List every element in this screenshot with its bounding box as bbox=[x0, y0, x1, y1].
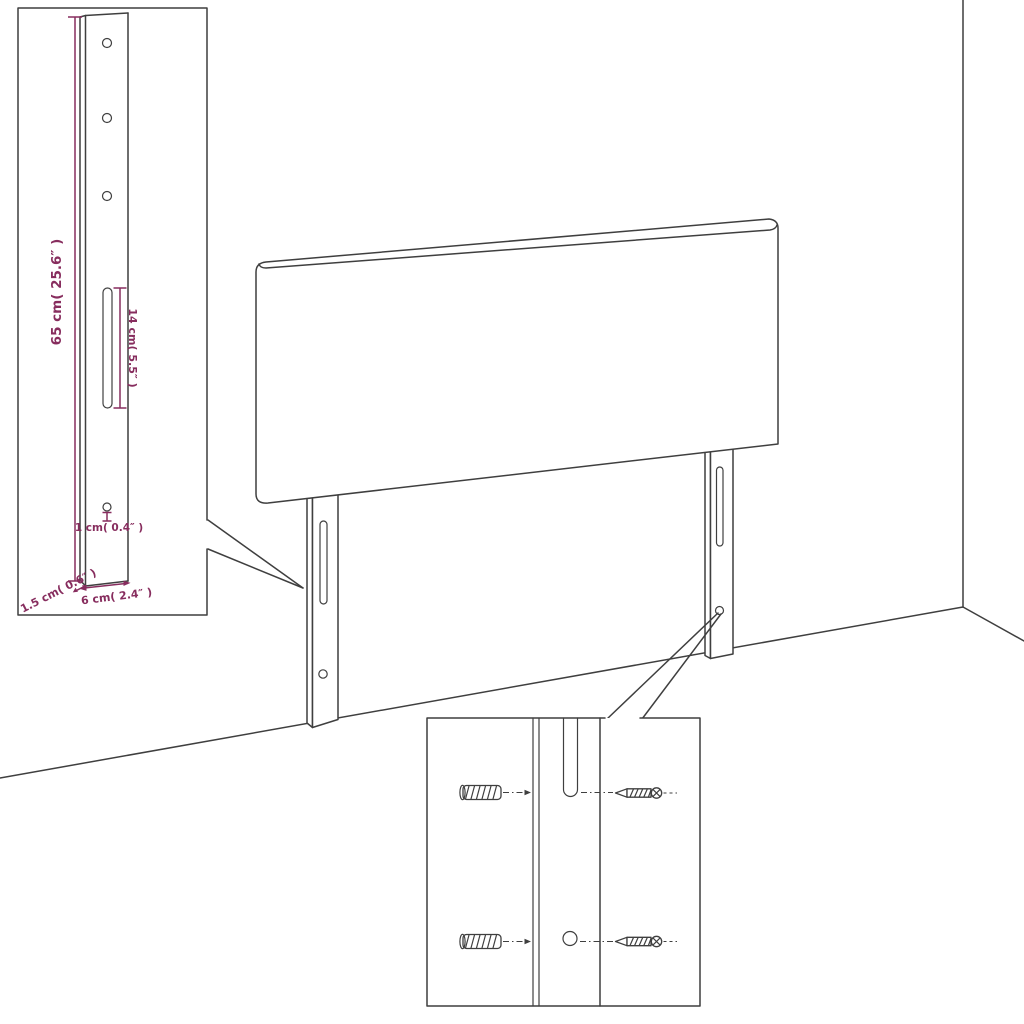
callout-wedge-left bbox=[208, 520, 303, 588]
mounting-detail-inset bbox=[427, 718, 700, 1006]
leg-detail-inset: 65 cm( 25.6″ ) 14 cm( 5.5″ ) 1 cm( 0.4″ … bbox=[18, 8, 207, 616]
right-leg-front-face bbox=[711, 440, 734, 659]
diagram-canvas: 65 cm( 25.6″ ) 14 cm( 5.5″ ) 1 cm( 0.4″ … bbox=[0, 0, 1024, 1024]
callout-line bbox=[208, 520, 303, 588]
callout-line bbox=[607, 613, 718, 719]
headboard-panel bbox=[256, 219, 778, 503]
callout-line bbox=[642, 614, 721, 719]
callout-wedge-bottom bbox=[607, 613, 721, 719]
left-leg bbox=[307, 489, 338, 728]
floor-wall-line-right bbox=[963, 607, 1024, 641]
headboard-outline bbox=[256, 219, 778, 503]
dim-label-hole-size: 1 cm( 0.4″ ) bbox=[75, 522, 143, 534]
right-leg-side-face bbox=[705, 445, 711, 659]
dim-label-leg-height: 65 cm( 25.6″ ) bbox=[49, 239, 65, 346]
left-leg-side-face bbox=[307, 496, 313, 728]
left-leg-front-face bbox=[313, 489, 339, 728]
assembly-diagram: 65 cm( 25.6″ ) 14 cm( 5.5″ ) 1 cm( 0.4″ … bbox=[0, 0, 1024, 1024]
dim-label-slot-length: 14 cm( 5.5″ ) bbox=[126, 308, 139, 387]
right-leg bbox=[705, 440, 733, 659]
